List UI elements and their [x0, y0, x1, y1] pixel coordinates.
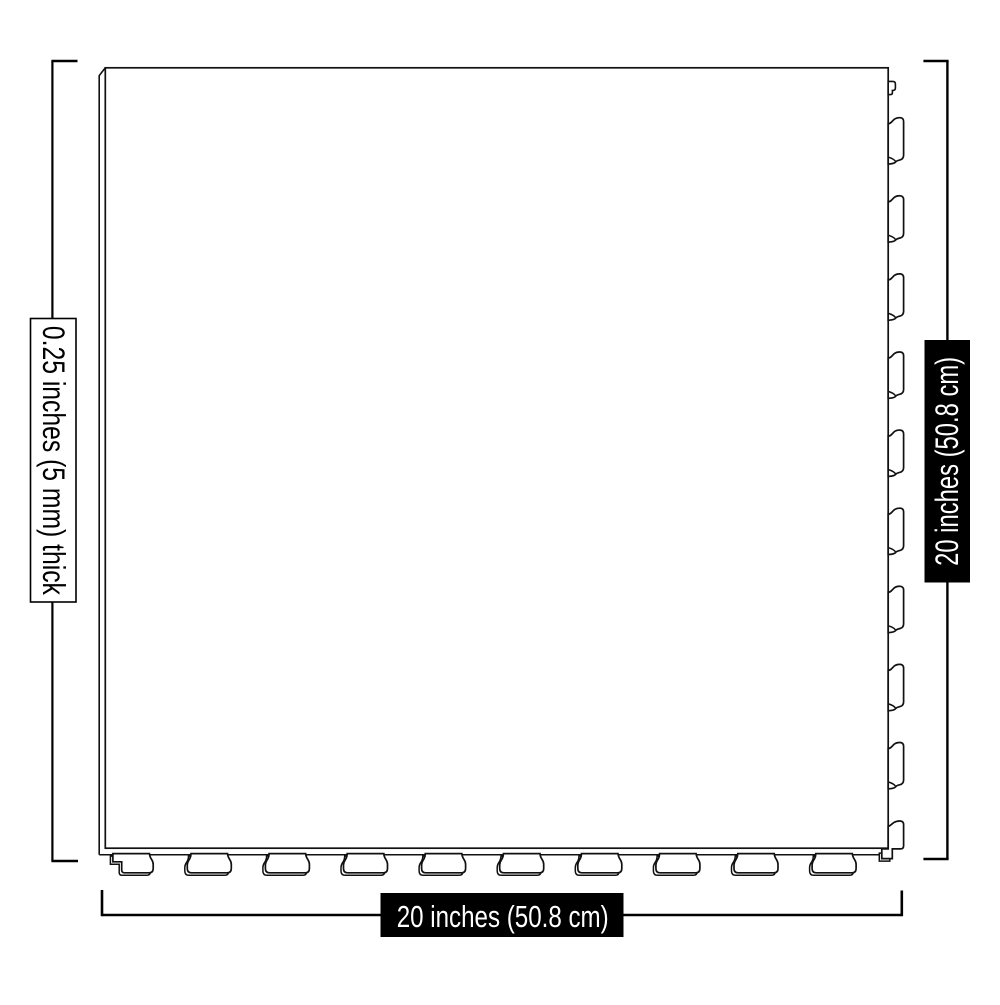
svg-text:20 inches (50.8 cm): 20 inches (50.8 cm) — [929, 357, 965, 566]
svg-text:0.25 inches (5 mm) thick: 0.25 inches (5 mm) thick — [36, 326, 72, 595]
svg-text:20 inches (50.8 cm): 20 inches (50.8 cm) — [397, 900, 609, 934]
